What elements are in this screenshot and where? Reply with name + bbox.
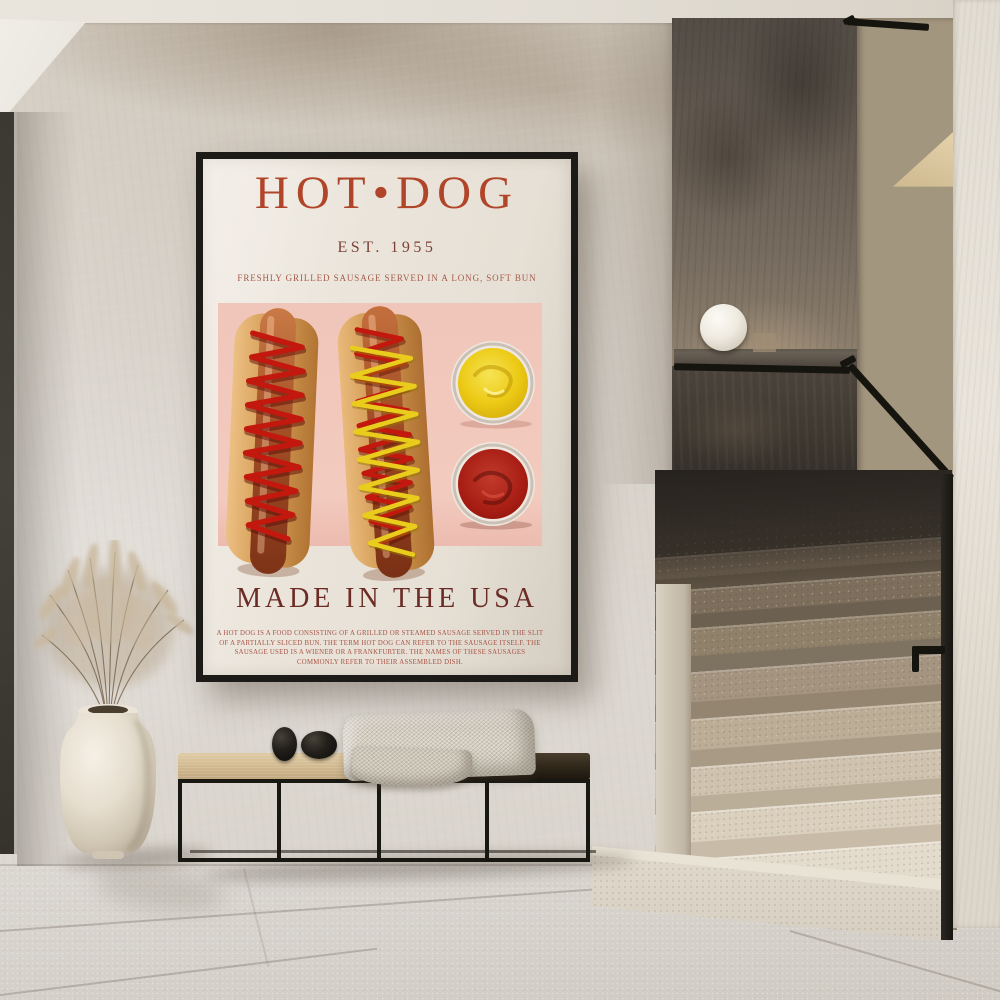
poster-title: HOT•DOG (203, 166, 571, 220)
bench-frame-back (190, 850, 596, 853)
pampas-grass (31, 540, 196, 718)
poster-description: A HOT DOG IS A FOOD CONSISTING OF A GRIL… (215, 629, 545, 668)
ketchup-cup (449, 440, 537, 530)
poster-subtitle: FRESHLY GRILLED SAUSAGE SERVED IN A LONG… (203, 273, 571, 283)
parapet-wall (672, 366, 858, 482)
white-vase (60, 704, 156, 859)
bench-frame-bottom (178, 858, 590, 862)
stair-side-wall (656, 584, 691, 874)
wall-corner-shadow (598, 18, 674, 484)
bench-leg (377, 779, 381, 862)
stair-bottom-platform (592, 842, 952, 945)
blanket-drape (351, 746, 472, 788)
hot-dog-mustard-ketchup-illustration (326, 301, 447, 585)
poster-tagline: MADE IN THE USA (203, 583, 571, 615)
pebble-decor (272, 727, 297, 761)
framed-poster: HOT•DOG EST. 1955 FRESHLY GRILLED SAUSAG… (196, 152, 578, 682)
interior-scene: HOT•DOG EST. 1955 FRESHLY GRILLED SAUSAG… (0, 0, 1000, 1000)
mustard-cup (449, 339, 537, 429)
bench-leg (586, 779, 590, 862)
dark-wall-panel (0, 112, 14, 854)
handrail-bracket-drop (912, 646, 919, 672)
bench-leg (277, 779, 281, 862)
bench-leg (485, 779, 489, 862)
sphere-lamp (700, 304, 747, 351)
vase-with-dried-grass (20, 540, 200, 870)
handrail-post (941, 474, 953, 940)
hot-dog-ketchup-illustration (216, 304, 328, 580)
pebble-decor (301, 731, 337, 759)
bench-leg (178, 779, 182, 862)
small-stand (753, 333, 776, 352)
right-wall (953, 0, 1000, 928)
poster-established: EST. 1955 (203, 239, 571, 257)
